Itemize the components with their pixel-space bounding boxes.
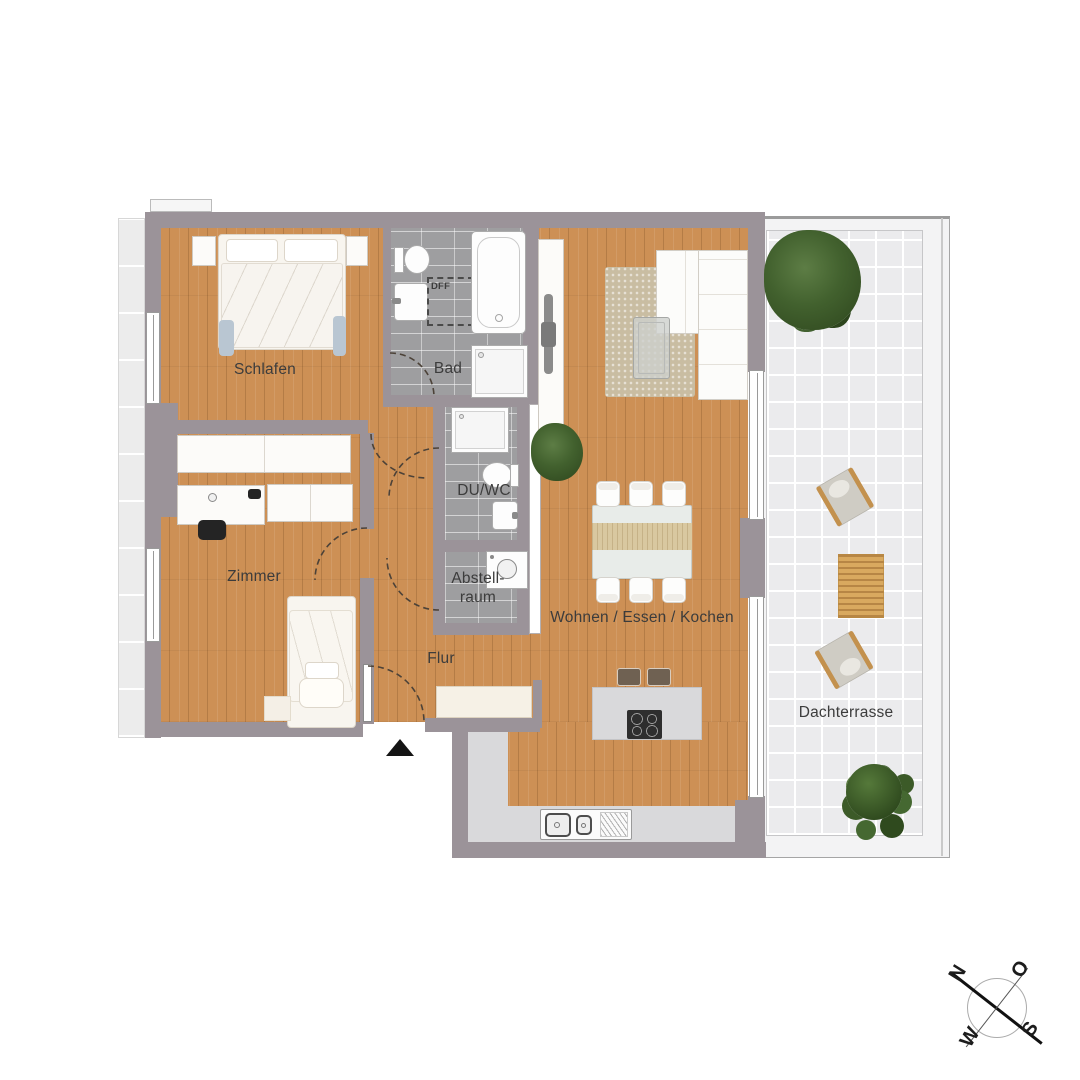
bedside-mat (264, 696, 291, 721)
bed-throw (219, 320, 234, 356)
label-bad: Bad (434, 360, 462, 378)
washing-machine-knob (490, 555, 494, 559)
nightstand-right (346, 236, 368, 266)
wall-right-a (748, 212, 765, 372)
floor-plan: Schlafen Bad DFF DU/WC Abstell- raum Zim… (0, 0, 1080, 1080)
nightstand-left (192, 236, 216, 266)
table-runner (592, 523, 692, 550)
coffee-table-top (638, 322, 665, 374)
desk-lamp (208, 493, 217, 502)
dresser (267, 484, 353, 522)
terrace-door-north (749, 370, 764, 520)
shower-bad-drain (478, 352, 484, 358)
single-bed-pillow (299, 678, 344, 708)
dining-chair (662, 481, 686, 507)
sink-drainer (600, 812, 628, 837)
sofa-right (698, 250, 748, 400)
wall-schlafen-south (160, 420, 368, 434)
dining-chair (662, 577, 686, 603)
wall-abstell-south (433, 623, 529, 635)
sink-drain-dot (581, 823, 586, 828)
shower-duwc-drain (459, 414, 464, 419)
wall-bottom (452, 842, 766, 858)
label-dachterrasse: Dachterrasse (799, 704, 894, 722)
compass-n: N (945, 961, 972, 985)
desk-chair (198, 520, 226, 540)
pillow (226, 239, 278, 262)
wall-duwc-left (433, 402, 445, 635)
neighbor-wall-outline (150, 199, 212, 212)
dining-chair (629, 481, 653, 507)
wall-right-c (748, 796, 765, 858)
sink-drain-dot (554, 822, 560, 828)
label-schlafen: Schlafen (234, 361, 296, 379)
toilet-bowl (404, 245, 430, 274)
entrance-arrow (386, 739, 414, 756)
wall-zimmer-flur-upper (360, 433, 374, 529)
compass-s: S (1017, 1018, 1044, 1042)
duvet (221, 263, 343, 348)
terrace-chair-seat (826, 476, 853, 501)
dining-chair (629, 577, 653, 603)
tv-stand (541, 322, 556, 347)
compass-o: O (1007, 957, 1035, 982)
window-zimmer (146, 548, 160, 642)
single-bed-pillow (305, 662, 339, 679)
label-flur: Flur (427, 650, 455, 668)
terrace-chair-seat (837, 654, 864, 679)
wall-step (452, 726, 468, 858)
entrance-door-leaf (363, 664, 372, 722)
label-abstellraum: Abstell- raum (451, 569, 504, 607)
pillow (284, 239, 338, 262)
terrace-bush (846, 764, 902, 820)
wall-top (145, 212, 765, 228)
window-schlafen (146, 312, 160, 404)
wardrobe (177, 435, 351, 473)
wall-schlafen-bad (383, 228, 391, 398)
label-wohnen: Wohnen / Essen / Kochen (550, 609, 734, 627)
dining-chair (596, 481, 620, 507)
dining-chair (596, 577, 620, 603)
sink-faucet (392, 298, 401, 304)
neighbor-terrace-strip (118, 218, 145, 738)
laptop (248, 489, 261, 499)
wall-flur-south (425, 718, 540, 732)
bed-throw (333, 316, 346, 356)
cooktop (627, 710, 662, 739)
terrace-tree (764, 230, 861, 330)
wall-right-pillar (740, 518, 765, 598)
terrace-door-south (749, 596, 764, 798)
label-duwc: DU/WC (457, 482, 511, 500)
bar-stool (617, 668, 641, 686)
bathtub-drain (495, 314, 503, 322)
terrace-inner-line (941, 218, 943, 856)
label-zimmer: Zimmer (227, 568, 281, 586)
wall-duwc-right (517, 402, 529, 635)
label-abstellraum-line2: raum (460, 589, 496, 606)
duwc-sink-faucet (512, 512, 518, 519)
compass: N O S W (925, 940, 1080, 1080)
toilet-duwc-tank (510, 464, 519, 487)
terrace-table (838, 554, 884, 618)
label-abstellraum-line1: Abstell- (451, 570, 504, 587)
wall-nook (533, 680, 542, 728)
plant-living (531, 423, 583, 481)
toilet-tank (394, 247, 404, 273)
label-dff: DFF (431, 281, 450, 292)
wall-kitchen-pillar (735, 800, 750, 844)
bar-stool (647, 668, 671, 686)
hall-sideboard (436, 686, 532, 718)
